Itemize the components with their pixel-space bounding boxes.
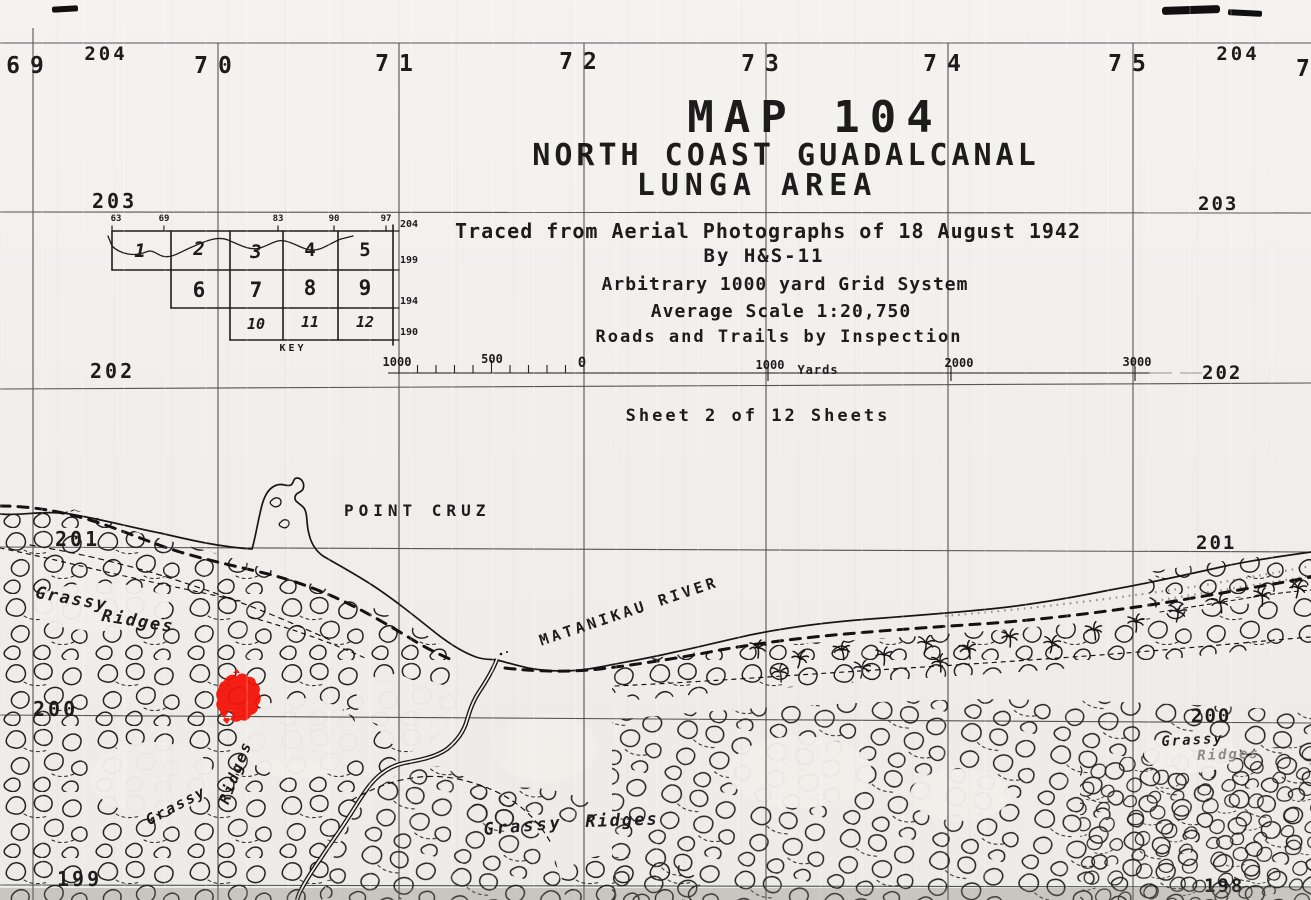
scanned-map-page: MAP 104 NORTH COAST GUADALCANAL LUNGA AR… [0,0,1311,900]
key-cell-2: 2 [193,240,204,259]
northing-right-202: 202 [1202,364,1242,383]
easting-71: 71 [375,53,423,76]
easting-72: 72 [559,51,607,74]
northing-right-203: 203 [1198,195,1238,214]
scan-smudges [52,5,1262,17]
northing-204-topleft: 204 [84,45,127,64]
easting-74: 74 [923,53,971,76]
key-cell-10: 10 [247,317,265,332]
scan-edge-band [0,888,1311,900]
map-canvas [0,0,1311,900]
scale-label-3000: 3000 [1123,356,1152,368]
map-title-line2: LUNGA AREA [637,171,878,201]
key-cell-7: 7 [250,280,263,301]
key-cell-1: 1 [134,242,145,261]
key-caption: KEY [279,344,306,354]
scale-label-0: 0 [578,356,586,370]
map-number: MAP 104 [687,96,942,140]
easting-70: 70 [194,55,242,78]
source-note-line3: Arbitrary 1000 yard Grid System [602,276,969,294]
key-tick-63: 63 [111,215,122,224]
key-tick-190: 190 [400,328,418,338]
easting-69: 69 [6,55,54,78]
scale-label-1000-right: 1000 [756,359,785,371]
ridge-texture-regions [0,508,1311,900]
scale-label-500: 500 [481,353,503,365]
key-tick-199: 199 [400,256,418,266]
key-tick-69: 69 [159,215,170,224]
source-note-line1: Traced from Aerial Photographs of 18 Aug… [455,221,1081,241]
scale-label-1000-left: 1000 [383,356,412,368]
northing-left-202: 202 [90,361,135,381]
source-note-line4: Average Scale 1:20,750 [651,303,911,321]
easting-75: 75 [1108,53,1156,76]
northing-left-203: 203 [92,191,137,211]
northing-left-201: 201 [55,529,100,549]
ridges-east-label: Ridges [1197,747,1260,763]
northing-left-199: 199 [57,869,102,889]
scale-label-2000: 2000 [945,357,974,369]
key-tick-194: 194 [400,297,418,307]
scale-unit-label: Yards [797,364,838,376]
source-note-line5: Roads and Trails by Inspection [595,329,962,346]
key-cell-9: 9 [359,278,372,299]
northing-right-201: 201 [1196,534,1236,553]
northing-left-200: 200 [33,699,78,719]
key-cell-6: 6 [193,280,206,301]
map-title-line1: NORTH COAST GUADALCANAL [532,141,1039,171]
key-tick-204: 204 [400,220,418,230]
key-tick-90: 90 [329,215,340,224]
easting-76-partial: 7 [1296,58,1310,81]
key-cell-8: 8 [304,278,317,299]
key-tick-97: 97 [381,215,392,224]
key-cell-4: 4 [304,241,315,260]
key-cell-11: 11 [301,315,319,330]
northing-right-200: 200 [1191,707,1231,726]
key-cell-3: 3 [250,243,261,262]
key-cell-12: 12 [356,315,374,330]
northing-204-topright: 204 [1216,45,1259,64]
source-note-line2: By H&S-11 [704,247,825,266]
sheet-note: Sheet 2 of 12 Sheets [626,408,891,425]
ridges-center-label: Ridges [585,811,659,831]
point-cruz-label: POINT CRUZ [344,503,490,519]
easting-73: 73 [741,53,789,76]
key-cell-5: 5 [359,241,370,260]
key-tick-83: 83 [273,215,284,224]
